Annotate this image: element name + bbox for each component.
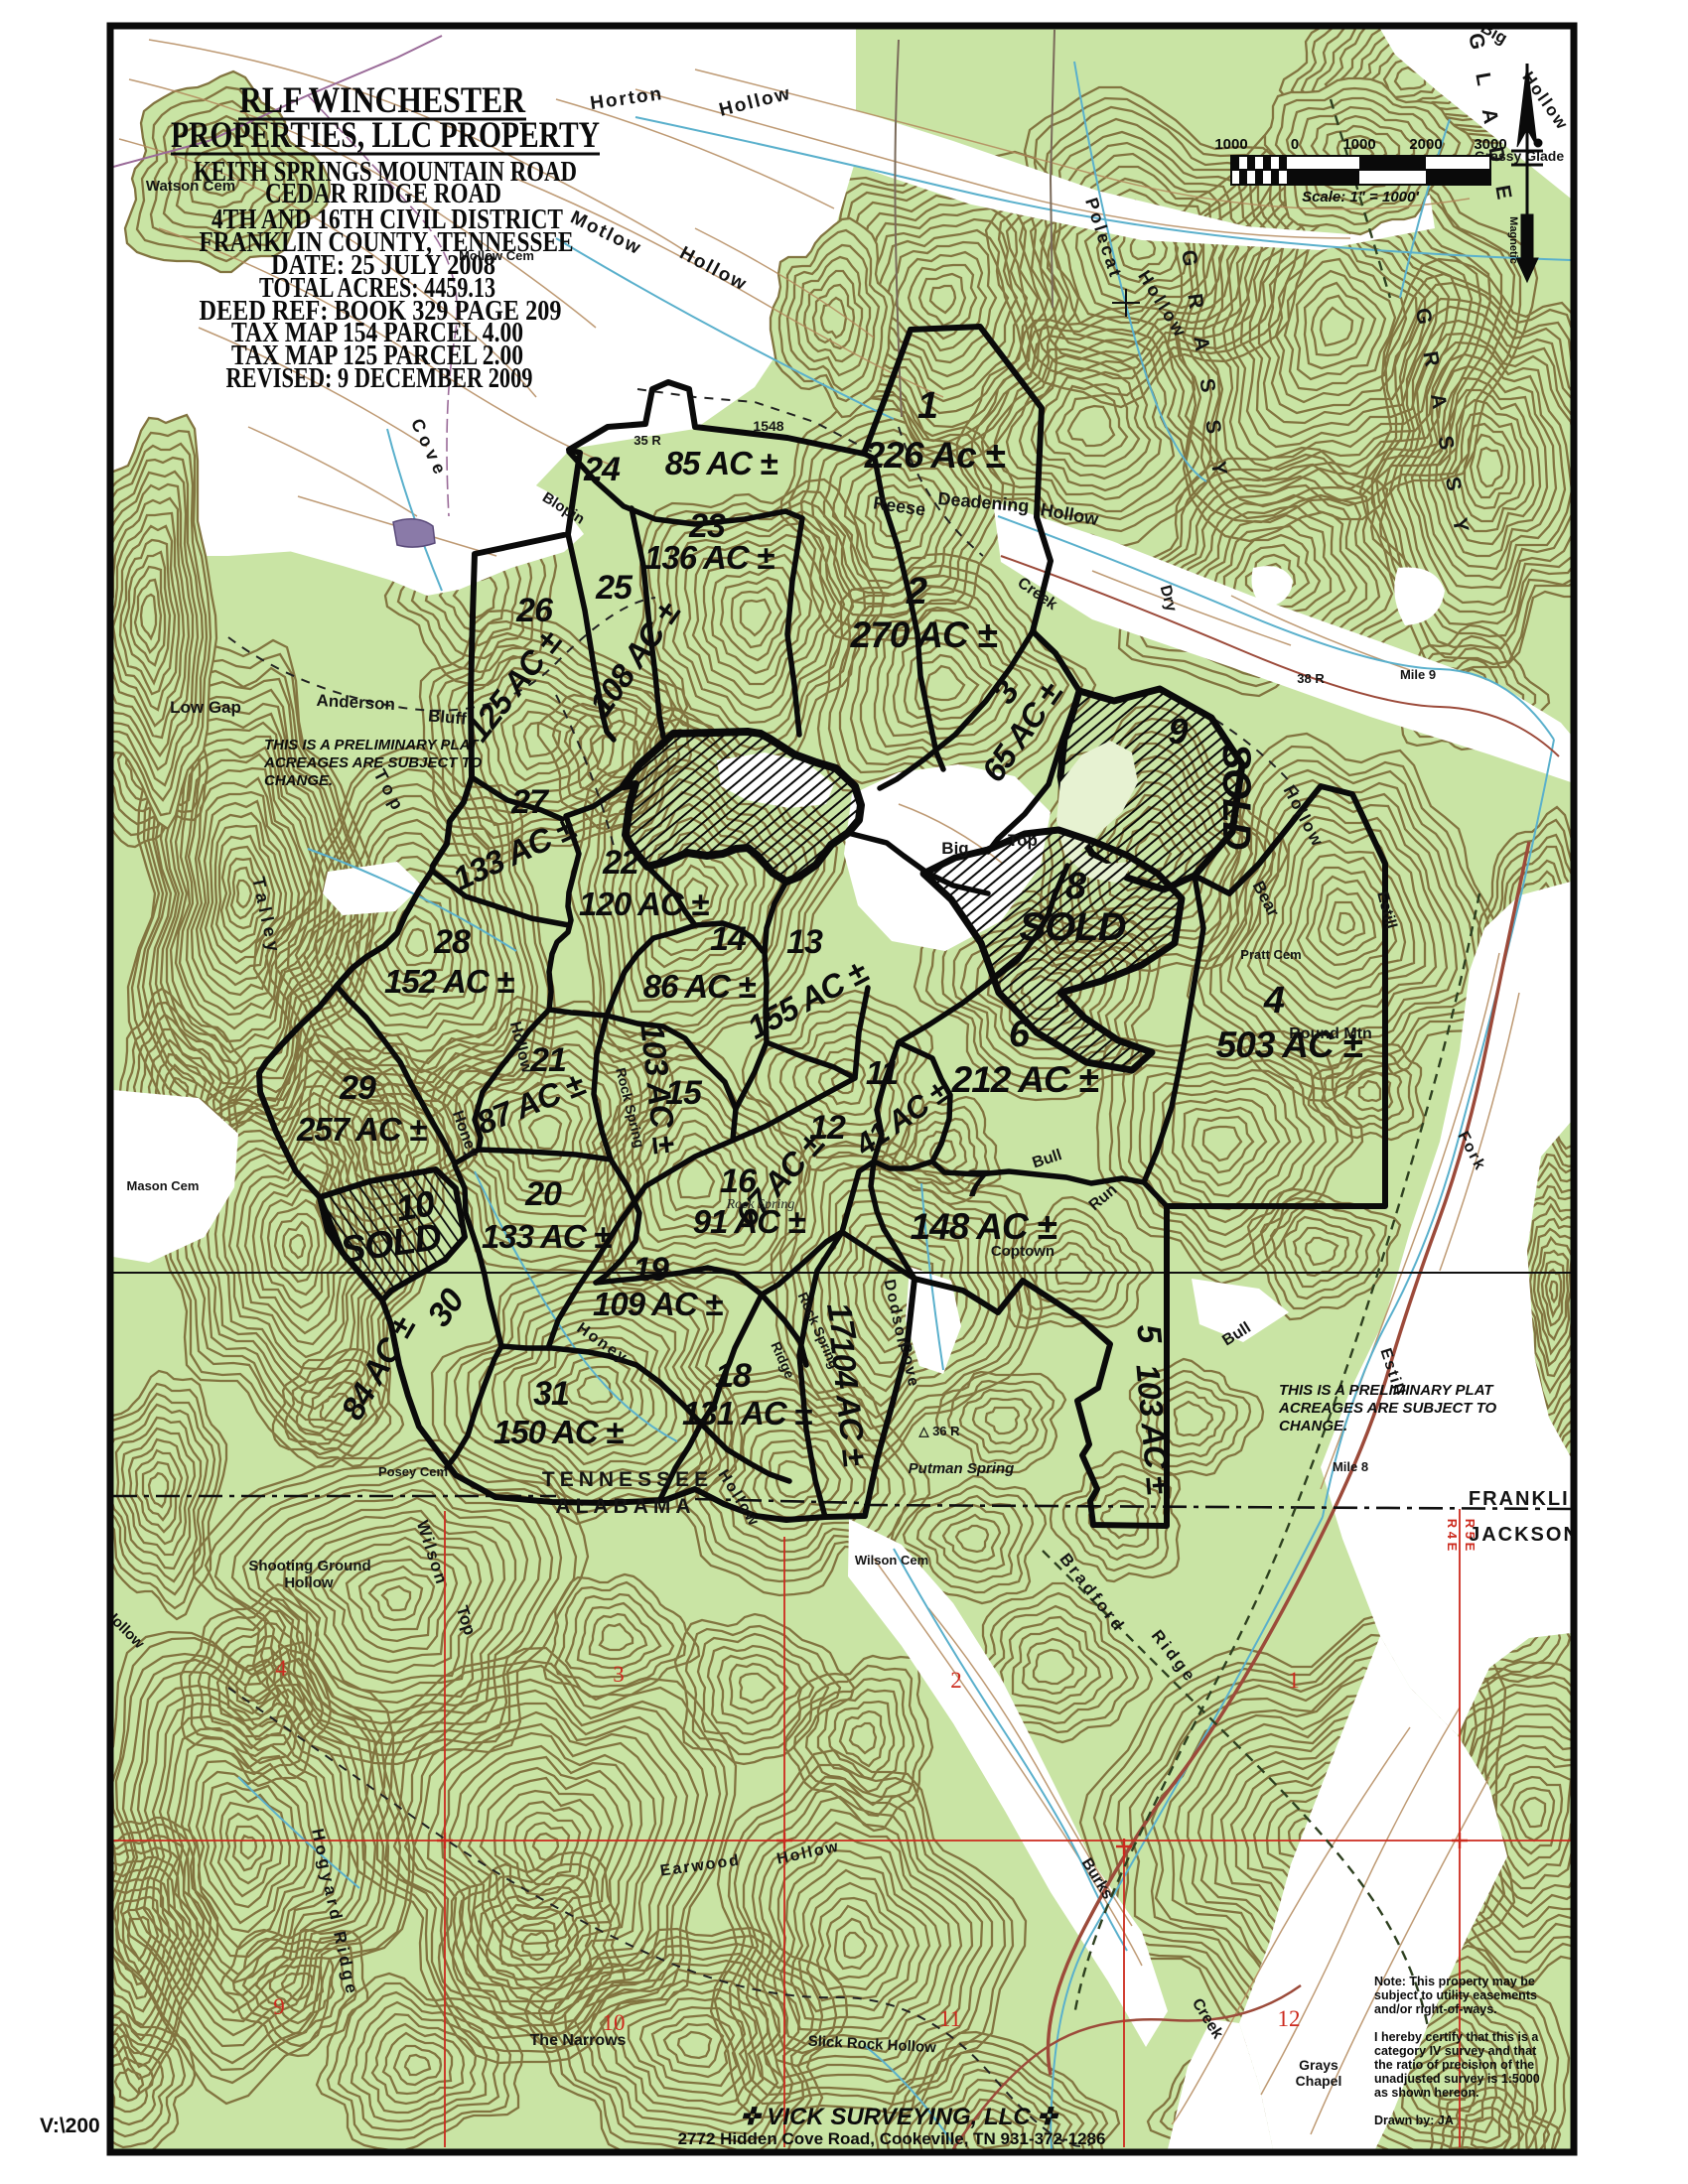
- svg-text:28: 28: [433, 923, 471, 961]
- svg-text:11: 11: [939, 2006, 961, 2031]
- svg-text:SOLD: SOLD: [1019, 905, 1125, 949]
- svg-text:Magnetic: Magnetic: [1507, 216, 1519, 264]
- svg-text:120 AC ±: 120 AC ±: [579, 886, 709, 922]
- svg-text:0: 0: [1291, 136, 1299, 153]
- svg-text:86 AC ±: 86 AC ±: [643, 968, 756, 1005]
- svg-text:Pratt Cem: Pratt Cem: [1240, 947, 1301, 962]
- svg-text:2: 2: [906, 571, 927, 613]
- svg-text:9: 9: [1168, 711, 1188, 751]
- svg-text:4: 4: [1263, 980, 1285, 1022]
- svg-text:Chapel: Chapel: [1296, 2073, 1342, 2089]
- svg-text:Shooting Ground: Shooting Ground: [248, 1558, 370, 1574]
- svg-text:12: 12: [1278, 2006, 1301, 2031]
- svg-text:1548: 1548: [753, 418, 783, 434]
- svg-text:Drawn by: JA: Drawn by: JA: [1374, 2114, 1454, 2127]
- svg-text:10: 10: [603, 2010, 626, 2035]
- svg-text:133 AC ±: 133 AC ±: [482, 1218, 612, 1255]
- svg-text:257 AC ±: 257 AC ±: [296, 1111, 427, 1148]
- svg-text:Coptown: Coptown: [991, 1243, 1055, 1260]
- svg-text:unadjusted survey is 1:5000: unadjusted survey is 1:5000: [1374, 2072, 1540, 2086]
- svg-text:7: 7: [966, 1163, 989, 1205]
- svg-text:226 Ac ±: 226 Ac ±: [864, 435, 1006, 476]
- svg-text:18: 18: [715, 1357, 752, 1395]
- svg-text:THIS IS A PRELIMINARY PLAT: THIS IS A PRELIMINARY PLAT: [264, 737, 480, 753]
- svg-text:Big: Big: [941, 839, 968, 858]
- svg-text:Mile 8: Mile 8: [1333, 1459, 1368, 1474]
- svg-text:Grays: Grays: [1299, 2057, 1338, 2073]
- svg-text:4: 4: [275, 1656, 287, 1681]
- svg-text:Low Gap: Low Gap: [170, 698, 241, 717]
- svg-text:212 AC ±: 212 AC ±: [951, 1059, 1099, 1100]
- svg-text:TENNESSEE: TENNESSEE: [542, 1468, 713, 1491]
- svg-text:V:\200: V:\200: [40, 2115, 100, 2137]
- svg-text:JACKSON: JACKSON: [1469, 1524, 1580, 1546]
- svg-text:31: 31: [533, 1375, 569, 1413]
- svg-text:ACREAGES ARE SUBJECT TO: ACREAGES ARE SUBJECT TO: [1278, 1400, 1497, 1417]
- svg-text:category IV survey and that: category IV survey and that: [1374, 2044, 1537, 2058]
- svg-text:THIS IS A PRELIMINARY PLAT: THIS IS A PRELIMINARY PLAT: [1279, 1382, 1494, 1399]
- svg-text:and/or right-of-ways.: and/or right-of-ways.: [1374, 2002, 1497, 2016]
- svg-text:Bluff: Bluff: [427, 706, 468, 728]
- svg-text:Note: This property may be: Note: This property may be: [1374, 1975, 1535, 1988]
- svg-text:109 AC ±: 109 AC ±: [593, 1286, 723, 1322]
- svg-text:136 AC ±: 136 AC ±: [644, 539, 774, 576]
- svg-text:Posey Cem: Posey Cem: [378, 1464, 448, 1479]
- svg-text:270 AC ±: 270 AC ±: [850, 614, 998, 655]
- svg-text:REVISED: 9 DECEMBER 2009: REVISED: 9 DECEMBER 2009: [226, 363, 533, 394]
- svg-text:27: 27: [510, 783, 550, 821]
- svg-text:R 5 E: R 5 E: [1463, 1519, 1477, 1552]
- svg-text:SOLD: SOLD: [1214, 743, 1258, 849]
- svg-text:11: 11: [866, 1054, 898, 1091]
- svg-text:3000: 3000: [1474, 136, 1506, 153]
- svg-text:△ 36 R: △ 36 R: [917, 1424, 960, 1438]
- svg-text:85 AC ±: 85 AC ±: [665, 445, 777, 481]
- svg-text:19: 19: [633, 1251, 669, 1289]
- svg-text:as shown hereon.: as shown hereon.: [1374, 2086, 1479, 2100]
- svg-text:3: 3: [613, 1662, 625, 1687]
- svg-text:Rock Spring: Rock Spring: [726, 1197, 795, 1212]
- svg-text:2: 2: [950, 1668, 962, 1693]
- svg-text:I hereby certify that this is: I hereby certify that this is a: [1374, 2030, 1539, 2044]
- svg-text:Mile 9: Mile 9: [1400, 667, 1436, 682]
- svg-text:152 AC ±: 152 AC ±: [384, 963, 514, 1000]
- svg-text:Scale: 1" = 1000': Scale: 1" = 1000': [1302, 189, 1419, 205]
- svg-text:2772 Hidden Cove Road, Coo: 2772 Hidden Cove Road, Cookeville, TN 93…: [678, 2129, 1106, 2148]
- svg-text:1000: 1000: [1214, 136, 1247, 153]
- svg-text:CHANGE.: CHANGE.: [1279, 1418, 1347, 1434]
- svg-text:131 AC ±: 131 AC ±: [682, 1395, 812, 1432]
- svg-text:26: 26: [515, 592, 554, 629]
- svg-text:1: 1: [917, 385, 937, 427]
- svg-text:24: 24: [583, 451, 621, 488]
- svg-text:13: 13: [786, 923, 823, 961]
- svg-text:150 AC ±: 150 AC ±: [493, 1414, 624, 1450]
- svg-text:R 4 E: R 4 E: [1445, 1519, 1460, 1552]
- svg-text:FRANKLIN: FRANKLIN: [1469, 1488, 1586, 1510]
- svg-text:9: 9: [273, 1994, 285, 2019]
- svg-text:22: 22: [602, 844, 639, 882]
- svg-text:ACREAGES ARE SUBJECT TO: ACREAGES ARE SUBJECT TO: [263, 754, 483, 771]
- svg-text:✜ VICK SURVEYING, LLC ✜: ✜ VICK SURVEYING, LLC ✜: [741, 2104, 1060, 2130]
- svg-text:29: 29: [339, 1069, 376, 1107]
- svg-text:20: 20: [524, 1175, 562, 1213]
- svg-text:35 R: 35 R: [633, 433, 661, 448]
- svg-text:PROPERTIES, LLC PROPERTY: PROPERTIES, LLC PROPERTY: [171, 115, 600, 156]
- svg-text:CHANGE.: CHANGE.: [264, 772, 333, 789]
- svg-text:Mason Cem: Mason Cem: [127, 1178, 200, 1193]
- svg-text:ALABAMA: ALABAMA: [555, 1495, 695, 1518]
- svg-text:Putman Spring: Putman Spring: [909, 1460, 1015, 1477]
- svg-text:25: 25: [595, 569, 633, 607]
- svg-text:1000: 1000: [1342, 136, 1375, 153]
- svg-text:subject to utility easements: subject to utility easements: [1374, 1988, 1537, 2002]
- svg-text:Round Mtn: Round Mtn: [1289, 1025, 1372, 1042]
- svg-text:14: 14: [710, 920, 747, 958]
- svg-text:148 AC ±: 148 AC ±: [911, 1206, 1057, 1247]
- svg-text:Wilson Cem: Wilson Cem: [855, 1553, 928, 1568]
- svg-text:Top: Top: [1008, 831, 1038, 850]
- svg-text:16: 16: [720, 1162, 758, 1200]
- svg-text:8: 8: [1065, 866, 1087, 907]
- svg-text:1: 1: [1288, 1668, 1300, 1693]
- svg-text:the ratio of precision of the: the ratio of precision of the: [1374, 2058, 1534, 2072]
- svg-text:2000: 2000: [1409, 136, 1442, 153]
- svg-text:38 R: 38 R: [1297, 671, 1325, 686]
- svg-text:6: 6: [1009, 1014, 1031, 1055]
- svg-text:Hollow: Hollow: [284, 1574, 333, 1591]
